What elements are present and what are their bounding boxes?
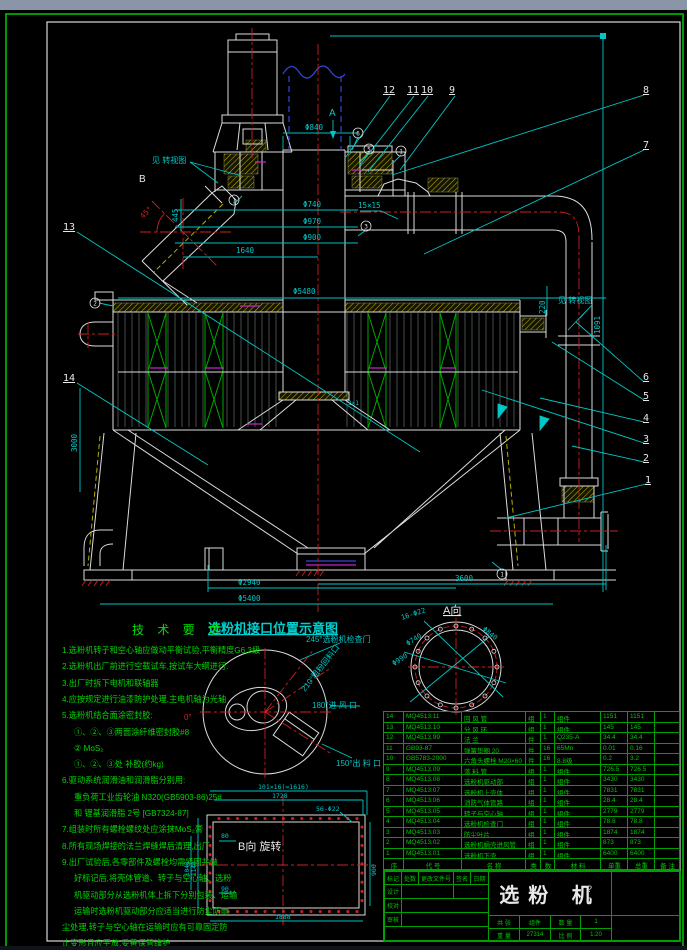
parts-table-cell [654, 764, 680, 775]
tech-line: 6.驱动系统润滑油和润滑脂分别用: [62, 776, 185, 785]
parts-table-cell: 组件 [554, 837, 600, 848]
parts-table-header: 序代 号名 称类数材 料单重总重备 注 [383, 858, 680, 870]
parts-table-cell: 2779 [600, 806, 627, 817]
parts-table-cell: 3430 [627, 774, 654, 785]
dim-45deg: 45° [138, 204, 154, 220]
parts-table-row: 6MQ4513.06消防气体管路组1组件28.428.4 [383, 795, 680, 806]
parts-table-cell: 组 [525, 774, 540, 785]
parts-table-cell: 2779 [627, 806, 654, 817]
parts-table-cell: 转子与空心轴 [461, 806, 525, 817]
schematic-deg150: 150°出 料 口 [336, 758, 381, 768]
parts-table-cell [654, 848, 680, 859]
dim-15x15: 15×15 [358, 201, 381, 210]
rev-count-cell: 处数 [401, 871, 419, 885]
parts-table-cell: 7831 [600, 785, 627, 796]
parts-table-cell: 类 [525, 858, 540, 870]
tech-line: ② MoS₂ [74, 744, 104, 753]
parts-table-cell: 总重 [627, 858, 654, 870]
parts-table-cell: 回 风 管 [461, 711, 525, 722]
parts-table-cell: 1874 [600, 827, 627, 838]
parts-table-row: 1MQ4513.01选粉机下壳组1组件64006400 [383, 848, 680, 859]
parts-table-cell: 1 [540, 732, 554, 743]
tech-line: 3.出厂时拆下电机和联轴器 [62, 679, 159, 688]
tech-line: 4.应按规定进行油漆防护处理,主电机轴为光轴 [62, 695, 226, 704]
callout-4: 4 [643, 413, 649, 424]
bview-900: 900 [370, 864, 378, 876]
parts-table-cell: 3430 [600, 774, 627, 785]
parts-table-cell: 726.5 [627, 764, 654, 775]
parts-table-cell: 1874 [627, 827, 654, 838]
scale-value-cell: 1:20 [580, 928, 612, 942]
parts-table-cell: 1 [540, 774, 554, 785]
callout-12: 12 [383, 85, 395, 96]
callout-10: 10 [421, 85, 433, 96]
circled-2: 2 [93, 301, 97, 308]
dim-phi840: Φ840 [305, 123, 324, 132]
parts-table-cell: MQ4513.02 [403, 837, 461, 848]
bview-80: 80 [221, 832, 229, 840]
tech-line: 机驱动部分从选粉机体上拆下分别包装、运输 [74, 891, 237, 900]
parts-table-cell [654, 827, 680, 838]
parts-table-cell: 3 [383, 827, 403, 838]
dim-phi900: Φ900 [303, 233, 322, 242]
parts-table-cell: 10 [383, 753, 403, 764]
question-mark-1: ? [587, 884, 592, 894]
parts-table-row: 11GB93-87弹簧垫圈 20件1665Mn0.010.16 [383, 743, 680, 754]
parts-table-row: 8MQ4513.08选粉机驱动部组1组件34303430 [383, 774, 680, 785]
parts-table-cell: 组件 [554, 806, 600, 817]
dim-1091: 1091 [593, 316, 602, 334]
parts-table-cell: 13 [383, 722, 403, 733]
parts-table-cell: MQ4513.99 [403, 732, 461, 743]
parts-table-cell: 1 [540, 795, 554, 806]
parts-table-cell [654, 795, 680, 806]
bview-bolts: 56-Φ22 [316, 805, 340, 813]
callout-5: 5 [643, 391, 649, 402]
parts-table-cell: 组 [525, 816, 540, 827]
parts-table-cell: 8.8级 [554, 753, 600, 764]
parts-table-cell: MQ4513.06 [403, 795, 461, 806]
tech-line: 5.选粉机结合面涂密封胶: [62, 711, 153, 720]
parts-table-cell: 1 [540, 837, 554, 848]
bview-1728: 1728 [272, 792, 288, 800]
parts-table-cell: 组 [525, 711, 540, 722]
parts-table-cell [654, 806, 680, 817]
parts-table-cell: MQ4513.05 [403, 806, 461, 817]
dim-phi970: Φ970 [303, 217, 322, 226]
tech-line: ①、②、③处 补胶(约kg) [74, 760, 164, 769]
parts-table-row: 7MQ4513.07选粉机上壳体组1组件78317831 [383, 785, 680, 796]
circled-5: 5 [367, 147, 371, 154]
parts-table-cell: GB5783-2000 [403, 753, 461, 764]
callout-1: 1 [645, 475, 651, 486]
dim-220: 220 [538, 300, 547, 314]
tech-line: 9.出厂试验后,各零部件及螺栓均需紧固并做 [62, 858, 218, 867]
bottom-blank [384, 926, 489, 942]
weight-label-cell: 重 量 [488, 928, 520, 942]
parts-table-cell [654, 837, 680, 848]
parts-table-cell: 落 料 管 [461, 764, 525, 775]
parts-table-cell: 组件 [554, 785, 600, 796]
parts-table-cell: 组 [525, 764, 540, 775]
dim-2x1: 2×1 [348, 400, 359, 407]
parts-table-cell: 法 兰 [461, 732, 525, 743]
circled-3: 3 [364, 224, 368, 231]
circled-6: 6 [356, 131, 360, 138]
parts-table-cell: 6400 [627, 848, 654, 859]
parts-table-cell: 单重 [600, 858, 627, 870]
check-cell: 校对 [384, 898, 402, 913]
title-block: 标记 处数 更改文件号 签名 日期 设计 校对 审核 选粉 机 共 张 组件 数… [383, 870, 680, 941]
parts-table-cell: 分 风 环 [461, 722, 525, 733]
parts-table-cell: 组件 [554, 774, 600, 785]
parts-table-cell [654, 774, 680, 785]
callout-9: 9 [449, 85, 455, 96]
design-blank2 [453, 884, 489, 899]
parts-table-cell [654, 722, 680, 733]
cad-drawing-page: { "window": { "topbar_color": "#8b95a8",… [0, 0, 687, 950]
design-cell: 设计 [384, 884, 402, 899]
parts-table-cell: 28.4 [600, 795, 627, 806]
callout-6: 6 [643, 372, 649, 383]
bview-pitch: 101×16(=1616) [258, 783, 309, 791]
parts-table-cell: 消防气体管路 [461, 795, 525, 806]
tech-line: 重负荷工业齿轮油 N320(GB5903-86)25# [74, 793, 222, 802]
b-view-label: B向 旋转 [238, 839, 281, 853]
parts-table-cell: MQ4513.03 [403, 827, 461, 838]
parts-table-cell: 1 [540, 711, 554, 722]
parts-table-cell: MQ4513.01 [403, 848, 461, 859]
parts-table-cell: 备 注 [654, 858, 680, 870]
parts-table-cell: 选粉机下壳 [461, 848, 525, 859]
callout-11: 11 [407, 85, 419, 96]
parts-table-cell [654, 743, 680, 754]
parts-table-cell: 3.2 [627, 753, 654, 764]
schematic-deg210: 210°粗粉回料口 [299, 643, 342, 694]
bview-1888: 1888 [275, 913, 291, 921]
check-blank [401, 898, 489, 913]
parts-table-cell: 组 [525, 785, 540, 796]
audit-blank [401, 912, 489, 927]
parts-table-cell: 78.8 [627, 816, 654, 827]
parts-table-cell: 名 称 [461, 858, 525, 870]
schematic-deg180: 180°进 风 口 [312, 701, 357, 710]
parts-table-row: 10GB5783-2000六角头螺栓 M20×60件168.8级0.23.2 [383, 753, 680, 764]
parts-table-row: 9MQ4513.09落 料 管组1组件726.5726.5 [383, 764, 680, 775]
question-mark-2: ? [587, 896, 592, 906]
parts-table-cell: 组 [525, 806, 540, 817]
tech-line: 8.所有现场焊接的法兰焊缝焊后清理,出厂 [62, 842, 210, 851]
parts-table-cell: 14 [383, 711, 403, 722]
dim-445: 445 [171, 208, 180, 222]
parts-table-cell: 选粉机检查门 [461, 816, 525, 827]
schematic-deg0: 0° [184, 713, 192, 722]
parts-table-cell [654, 753, 680, 764]
parts-table-cell: 组件 [554, 722, 600, 733]
tech-line: ①、②、③两面涂纤维密封胶#8 [74, 728, 189, 737]
tech-requirements-title: 技 术 要 求 [132, 624, 225, 636]
parts-table-cell: 145 [627, 722, 654, 733]
parts-table-cell [654, 711, 680, 722]
dim-phi5480: Φ5480 [293, 287, 316, 296]
parts-table-cell: 组 [525, 827, 540, 838]
parts-table-row: 序代 号名 称类数材 料单重总重备 注 [383, 858, 680, 870]
aview-phi740: Φ740 [405, 632, 423, 648]
audit-cell: 审核 [384, 912, 402, 927]
parts-table-row: 5MQ4513.05转子与空心轴组1组件27792779 [383, 806, 680, 817]
parts-table-cell: 145 [600, 722, 627, 733]
parts-table-cell: 组件 [554, 711, 600, 722]
parts-table-cell: 726.5 [600, 764, 627, 775]
dim-3000: 3000 [70, 433, 79, 452]
parts-table-cell [654, 816, 680, 827]
arrow-b-label: B [139, 174, 146, 185]
parts-table-row: 4MQ4513.04选粉机检查门组1组件78.878.8 [383, 816, 680, 827]
parts-table-cell: Q235-A [554, 732, 600, 743]
parts-table-cell: 7831 [627, 785, 654, 796]
parts-table-cell: 件 [525, 743, 540, 754]
hatch-regions [113, 140, 594, 502]
parts-table-cell: 组 [525, 795, 540, 806]
circled-1a: 1 [399, 149, 403, 156]
parts-table-cell: 组件 [554, 764, 600, 775]
parts-table-cell: 六角头螺栓 M20×60 [461, 753, 525, 764]
parts-table-cell: 件 [525, 753, 540, 764]
rev-doc-cell: 更改文件号 [418, 871, 454, 885]
tech-line: 1.选粉机转子和空心轴应做动平衡试验,平衡精度G6.3级 [62, 646, 260, 655]
parts-table-cell: 0.2 [600, 753, 627, 764]
parts-table-cell: 组 [525, 848, 540, 859]
parts-table-cell: 序 [383, 858, 403, 870]
parts-table-cell: 1 [540, 827, 554, 838]
circled-1c: 1 [500, 572, 504, 579]
dim-phi740: Φ740 [303, 200, 322, 209]
callout-14: 14 [63, 373, 75, 384]
parts-table-cell: 5 [383, 806, 403, 817]
dim-1640: 1640 [236, 246, 255, 255]
parts-table-cell: 34.4 [600, 732, 627, 743]
parts-table-cell: 1 [540, 848, 554, 859]
parts-table-cell: 1 [540, 764, 554, 775]
x-brace-columns [148, 313, 456, 428]
qty-value-cell: 1 [580, 915, 612, 929]
tech-line: 尘处理,转子与空心轴在运输时应有可靠固定防 [62, 923, 227, 932]
parts-table-cell: 6 [383, 795, 403, 806]
parts-table-cell: 组件 [554, 827, 600, 838]
parts-table-cell: 0.16 [627, 743, 654, 754]
callout-2: 2 [643, 453, 649, 464]
parts-table-cell: 选粉机驱动部 [461, 774, 525, 785]
parts-table-cell: MQ4513.04 [403, 816, 461, 827]
parts-table-cell: 选粉机上壳体 [461, 785, 525, 796]
tech-line: 好标记后,将壳体管道、转子与空心轴、选粉 [74, 874, 231, 883]
parts-table-cell: 12 [383, 732, 403, 743]
stage-cell: 组件 [519, 915, 551, 929]
parts-table-cell: MQ4513.07 [403, 785, 461, 796]
dim-phi5400: Φ5400 [238, 594, 261, 603]
schematic-title: 选粉机接口位置示意图 [208, 621, 338, 636]
parts-table-cell: 0.01 [600, 743, 627, 754]
circled-marker-numbers: 6 5 1 1 3 2 1 [93, 131, 504, 579]
parts-table-cell: 组 [525, 837, 540, 848]
parts-table-body: 14MQ4513.11回 风 管组1组件1151115113MQ4513.10分… [383, 711, 680, 858]
callout-13: 13 [63, 222, 75, 233]
parts-table-cell: 873 [627, 837, 654, 848]
callout-numbers: 12 11 10 9 8 7 6 5 4 3 2 1 13 14 [63, 85, 651, 486]
aview-phi990: Φ990 [391, 652, 409, 668]
parts-table-cell: 组件 [554, 816, 600, 827]
parts-table-cell: 873 [600, 837, 627, 848]
parts-table-cell: 1151 [627, 711, 654, 722]
rot-view-left-label: 见 转视图 [152, 155, 186, 165]
tech-line: 和 锂基润滑脂 2号 [GB7324-87] [74, 809, 189, 818]
tech-line: 2.选粉机出厂前进行空载试车,按试车大纲进行. [62, 662, 228, 671]
parts-table-cell: 16 [540, 743, 554, 754]
parts-table-row: 3MQ4513.03防尘叶片组1组件18741874 [383, 827, 680, 838]
tube-bundle-stripes [118, 313, 514, 427]
parts-table-cell: 件 [525, 732, 540, 743]
schematic-deg245: 245°选粉机检查门 [306, 634, 371, 644]
callout-7: 7 [643, 140, 649, 151]
parts-table-cell: 8 [383, 774, 403, 785]
parts-table-cell: 1 [540, 816, 554, 827]
parts-table-cell: 2 [383, 837, 403, 848]
design-blank [401, 884, 454, 899]
parts-table-cell: 防尘叶片 [461, 827, 525, 838]
parts-table-row: 14MQ4513.11回 风 管组1组件11511151 [383, 711, 680, 722]
parts-table-cell: 组 [525, 722, 540, 733]
rev-sign-cell: 签名 [453, 871, 471, 885]
callout-8: 8 [643, 85, 649, 96]
parts-table-cell: 组件 [554, 795, 600, 806]
parts-table-cell: 1 [540, 806, 554, 817]
rot-view-right-label: 见 转视图 [558, 295, 592, 305]
dim-3600: 3600 [455, 574, 474, 583]
drawing-number-cell [611, 871, 681, 916]
parts-table-cell: 4 [383, 816, 403, 827]
parts-table-cell: 7 [383, 785, 403, 796]
tech-line: 运输时选粉机驱动部分应适当进行防尘防雨 [74, 907, 229, 916]
aview-bolts: 16-Φ22 [400, 606, 427, 621]
qty-label-cell: 数 量 [550, 915, 581, 929]
parts-table-cell: MQ4513.11 [403, 711, 461, 722]
parts-table-cell: 1151 [600, 711, 627, 722]
a-view-label: A向 [443, 603, 461, 617]
weight-value-cell: 27314 [519, 928, 551, 942]
arrow-a-label: A [329, 108, 336, 119]
parts-table-cell: 6400 [600, 848, 627, 859]
parts-table-cell: 1 [383, 848, 403, 859]
parts-table-cell: GB93-87 [403, 743, 461, 754]
parts-table-cell: MQ4513.10 [403, 722, 461, 733]
scale-label-cell: 比 例 [550, 928, 581, 942]
window-bottom-edge [0, 946, 687, 950]
parts-table-cell: 1 [540, 722, 554, 733]
parts-table-cell: 1 [540, 785, 554, 796]
sheet-label-cell: 共 张 [488, 915, 520, 929]
drawing-title-cell: 选粉 机 [488, 871, 612, 916]
parts-table-cell: 78.8 [600, 816, 627, 827]
rev-mark-cell: 标记 [384, 871, 402, 885]
parts-list-table: 14MQ4513.11回 风 管组1组件1151115113MQ4513.10分… [383, 711, 680, 870]
parts-table-cell: 代 号 [403, 858, 461, 870]
parts-table-cell: 选粉机蜗壳进风管 [461, 837, 525, 848]
parts-table-cell: 数 [540, 858, 554, 870]
parts-table-cell: 65Mn [554, 743, 600, 754]
dim-phi2940: Φ2940 [238, 578, 261, 587]
parts-table-row: 2MQ4513.02选粉机蜗壳进风管组1组件873873 [383, 837, 680, 848]
parts-table-cell [654, 785, 680, 796]
parts-table-cell: MQ4513.08 [403, 774, 461, 785]
circled-1b: 1 [232, 198, 236, 205]
parts-table-row: 13MQ4513.10分 风 环组1组件145145 [383, 722, 680, 733]
bottom-right-blank [611, 915, 681, 942]
parts-table-cell: 材 料 [554, 858, 600, 870]
callout-3: 3 [643, 434, 649, 445]
parts-table-cell: 9 [383, 764, 403, 775]
tech-line: 7.组装时所有螺栓螺纹处应涂抹MoS₂膏 [62, 825, 203, 834]
parts-table-cell: 34.4 [627, 732, 654, 743]
drawing-title: 选粉 机 [499, 879, 601, 908]
parts-table-cell: 11 [383, 743, 403, 754]
parts-table-cell: 弹簧垫圈 20 [461, 743, 525, 754]
parts-table-cell: 28.4 [627, 795, 654, 806]
parts-table-cell [654, 732, 680, 743]
rev-date-cell: 日期 [470, 871, 489, 885]
parts-table-row: 12MQ4513.99法 兰件1Q235-A34.434.4 [383, 732, 680, 743]
parts-table-cell: MQ4513.09 [403, 764, 461, 775]
parts-table-cell: 组件 [554, 848, 600, 859]
parts-table-cell: 16 [540, 753, 554, 764]
